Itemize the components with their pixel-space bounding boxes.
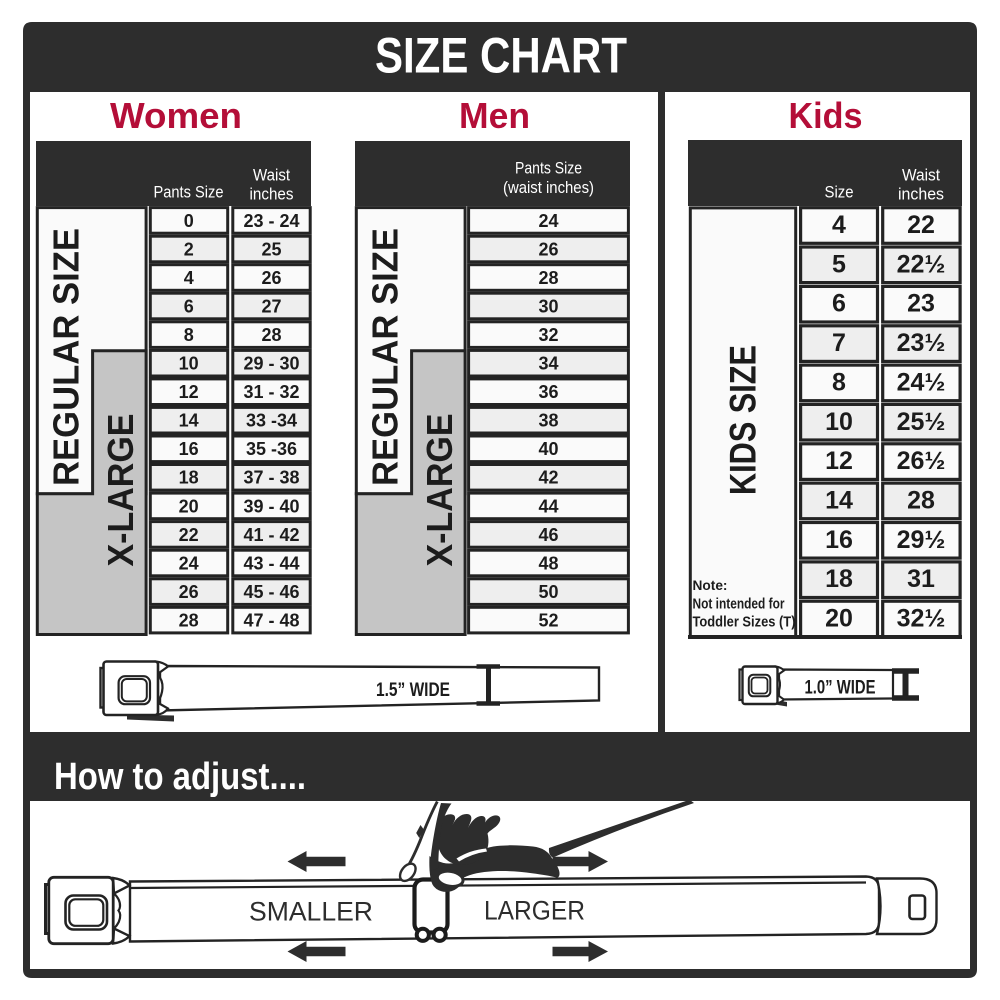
- svg-text:SIZE CHART: SIZE CHART: [375, 28, 627, 84]
- svg-text:4: 4: [832, 211, 846, 239]
- svg-text:35 -36: 35 -36: [246, 439, 297, 459]
- svg-text:SMALLER: SMALLER: [249, 897, 373, 927]
- svg-text:50: 50: [538, 582, 558, 602]
- svg-text:28: 28: [538, 268, 558, 288]
- svg-text:7: 7: [832, 329, 846, 357]
- svg-text:LARGER: LARGER: [484, 896, 585, 926]
- svg-text:25½: 25½: [897, 408, 946, 436]
- svg-text:10: 10: [825, 408, 853, 436]
- svg-text:Waist: Waist: [253, 167, 290, 185]
- svg-text:14: 14: [179, 411, 199, 431]
- svg-text:22: 22: [179, 525, 199, 545]
- svg-text:2: 2: [184, 239, 194, 259]
- svg-text:26: 26: [261, 268, 281, 288]
- svg-text:26: 26: [538, 239, 558, 259]
- svg-text:45 - 46: 45 - 46: [243, 582, 299, 602]
- svg-text:23½: 23½: [897, 329, 946, 357]
- svg-text:16: 16: [179, 439, 199, 459]
- svg-text:How to adjust....: How to adjust....: [54, 756, 306, 798]
- svg-text:41 - 42: 41 - 42: [243, 525, 299, 545]
- svg-text:X-LARGE: X-LARGE: [419, 414, 460, 567]
- svg-text:10: 10: [179, 354, 199, 374]
- svg-text:52: 52: [538, 611, 558, 631]
- svg-text:27: 27: [261, 296, 281, 316]
- svg-text:29½: 29½: [897, 526, 946, 554]
- svg-text:8: 8: [184, 325, 194, 345]
- svg-text:32: 32: [538, 325, 558, 345]
- svg-text:24: 24: [538, 211, 558, 231]
- svg-text:42: 42: [538, 468, 558, 488]
- svg-text:16: 16: [825, 526, 853, 554]
- svg-text:4: 4: [184, 268, 194, 288]
- svg-text:37 - 38: 37 - 38: [243, 468, 299, 488]
- svg-text:29 - 30: 29 - 30: [243, 354, 299, 374]
- svg-text:31: 31: [907, 565, 935, 593]
- svg-text:Not intended for: Not intended for: [693, 597, 785, 613]
- svg-text:32½: 32½: [897, 605, 946, 633]
- svg-text:20: 20: [179, 496, 199, 516]
- svg-text:0: 0: [184, 211, 194, 231]
- svg-text:KIDS SIZE: KIDS SIZE: [722, 345, 763, 495]
- svg-text:Kids: Kids: [789, 95, 863, 136]
- svg-text:44: 44: [538, 496, 558, 516]
- svg-text:inches: inches: [250, 186, 294, 204]
- svg-text:28: 28: [907, 486, 935, 514]
- svg-text:18: 18: [179, 468, 199, 488]
- svg-text:34: 34: [538, 354, 558, 374]
- svg-text:1.0” WIDE: 1.0” WIDE: [805, 678, 876, 699]
- svg-text:12: 12: [825, 447, 853, 475]
- svg-text:48: 48: [538, 553, 558, 573]
- svg-text:31 - 32: 31 - 32: [243, 382, 299, 402]
- svg-text:28: 28: [179, 611, 199, 631]
- svg-text:REGULAR SIZE: REGULAR SIZE: [46, 228, 87, 486]
- svg-text:Toddler Sizes (T): Toddler Sizes (T): [693, 615, 796, 631]
- svg-text:Size: Size: [825, 184, 854, 202]
- svg-text:26½: 26½: [897, 447, 946, 475]
- svg-text:5: 5: [832, 250, 846, 278]
- svg-text:Women: Women: [110, 95, 242, 136]
- svg-text:25: 25: [261, 239, 281, 259]
- svg-text:36: 36: [538, 382, 558, 402]
- svg-text:47 - 48: 47 - 48: [243, 611, 299, 631]
- svg-text:20: 20: [825, 605, 853, 633]
- svg-text:6: 6: [832, 290, 846, 318]
- svg-text:14: 14: [825, 486, 853, 514]
- svg-text:1.5” WIDE: 1.5” WIDE: [376, 680, 450, 701]
- svg-text:X-LARGE: X-LARGE: [100, 414, 141, 567]
- svg-text:24½: 24½: [897, 368, 946, 396]
- svg-text:33 -34: 33 -34: [246, 411, 297, 431]
- svg-text:22½: 22½: [897, 250, 946, 278]
- svg-text:26: 26: [179, 582, 199, 602]
- svg-text:43 - 44: 43 - 44: [243, 553, 299, 573]
- svg-text:46: 46: [538, 525, 558, 545]
- svg-text:6: 6: [184, 296, 194, 316]
- svg-text:(waist inches): (waist inches): [503, 179, 594, 197]
- svg-text:inches: inches: [898, 186, 944, 204]
- svg-text:Pants Size: Pants Size: [515, 160, 582, 178]
- svg-text:18: 18: [825, 565, 853, 593]
- svg-text:Men: Men: [459, 95, 530, 136]
- svg-text:40: 40: [538, 439, 558, 459]
- svg-text:22: 22: [907, 211, 935, 239]
- svg-text:12: 12: [179, 382, 199, 402]
- svg-text:Note:: Note:: [693, 578, 728, 593]
- svg-text:Waist: Waist: [902, 167, 940, 185]
- svg-text:8: 8: [832, 368, 846, 396]
- svg-text:38: 38: [538, 411, 558, 431]
- svg-text:Pants Size: Pants Size: [154, 184, 224, 202]
- svg-text:23 - 24: 23 - 24: [243, 211, 299, 231]
- svg-text:24: 24: [179, 553, 199, 573]
- svg-text:REGULAR SIZE: REGULAR SIZE: [365, 228, 406, 486]
- svg-text:28: 28: [261, 325, 281, 345]
- svg-text:39 - 40: 39 - 40: [243, 496, 299, 516]
- svg-text:23: 23: [907, 290, 935, 318]
- svg-text:30: 30: [538, 296, 558, 316]
